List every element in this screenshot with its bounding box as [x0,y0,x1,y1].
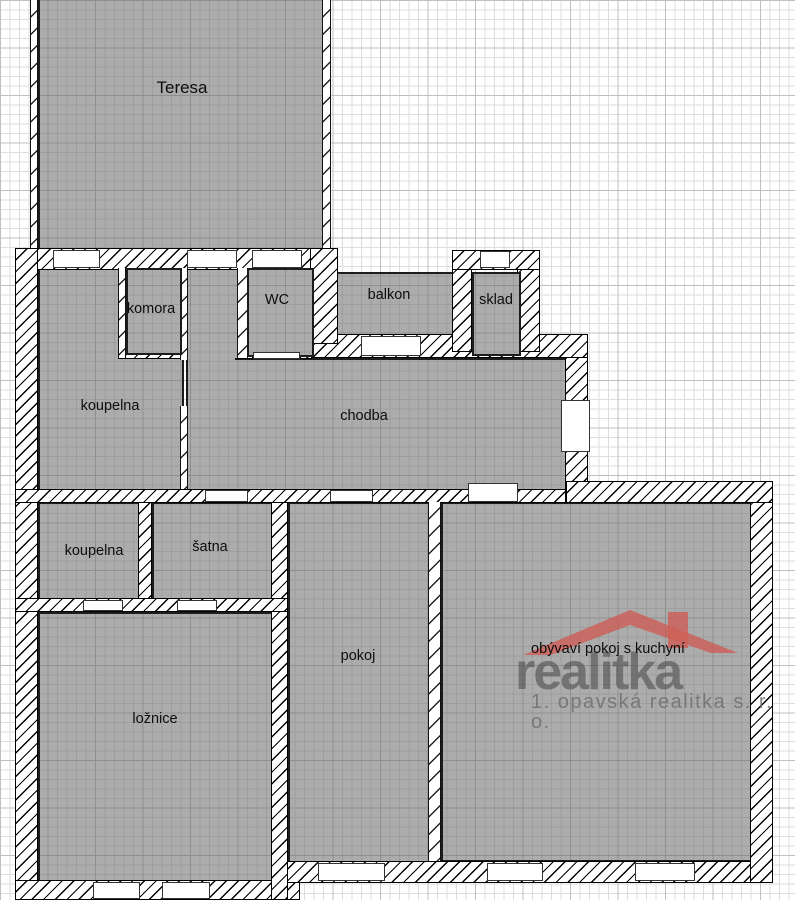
door-opening-terasa-koupelna [53,250,100,268]
window-opening-obyvaci-2 [635,863,695,881]
door-opening-pokoj [330,490,373,502]
wall-terasa-right [322,0,331,248]
room-label-balkon: balkon [368,287,411,303]
room-wc [247,268,314,357]
wall-right-obyvaci [750,481,773,883]
realitka-subtitle-text: 1. opavská realitka s. r. o. [531,692,795,732]
door-opening-wc [253,352,300,359]
room-chodba-junction [188,350,235,366]
window-opening-chodba [561,400,590,452]
door-opening-balkon [361,336,421,356]
wall-loznice-top [15,598,288,612]
door-opening-koupelna-loznice [83,600,123,611]
room-label-koupelna-dolni: koupelna [65,543,124,559]
door-opening-obyvaci [468,483,518,502]
wall-pokoj-obyvaci [428,502,441,861]
room-label-chodba: chodba [340,408,388,424]
wall-koupelna-chodba-lower [180,406,188,489]
room-balkon [336,272,456,338]
room-label-obyvaci: obývaví pokoj s kuchyní [531,641,685,657]
room-chodba [186,358,570,493]
window-opening-pokoj [318,863,385,881]
room-label-sklad: sklad [479,292,513,308]
room-teresa [38,0,326,250]
room-pokoj [288,502,432,865]
room-label-wc: WC [265,292,289,308]
window-opening-loznice-2 [162,882,210,899]
room-label-koupelna-horni: koupelna [81,398,140,414]
wall-komora-left [118,268,126,358]
wall-wc-right [310,248,338,344]
wall-bottom-loznice [15,880,300,900]
wall-balkon-band [300,334,588,358]
door-opening-terasa-chodba [187,250,237,268]
wall-koupelna-satna [138,502,152,599]
room-label-satna: šatna [192,539,227,555]
room-label-teresa: Teresa [156,78,207,98]
window-opening-wc [252,250,302,268]
room-label-pokoj: pokoj [341,648,376,664]
window-opening-loznice-1 [93,882,140,899]
wall-obyvaci-top [566,481,773,503]
room-label-komora: komora [127,301,175,317]
door-opening-satna [205,490,248,502]
window-opening-sklad [480,251,510,268]
wall-terasa-left [30,0,38,248]
room-label-loznice: ložnice [132,711,177,727]
room-loznice [38,612,275,884]
window-opening-obyvaci-1 [487,863,543,881]
door-opening-satna-loznice [177,600,217,611]
floor-plan-canvas: { "rooms": { "teresa": {"label": "Teresa… [0,0,795,900]
room-sklad [472,272,521,356]
wall-loznice-pokoj [271,502,288,900]
wall-left [15,248,38,900]
